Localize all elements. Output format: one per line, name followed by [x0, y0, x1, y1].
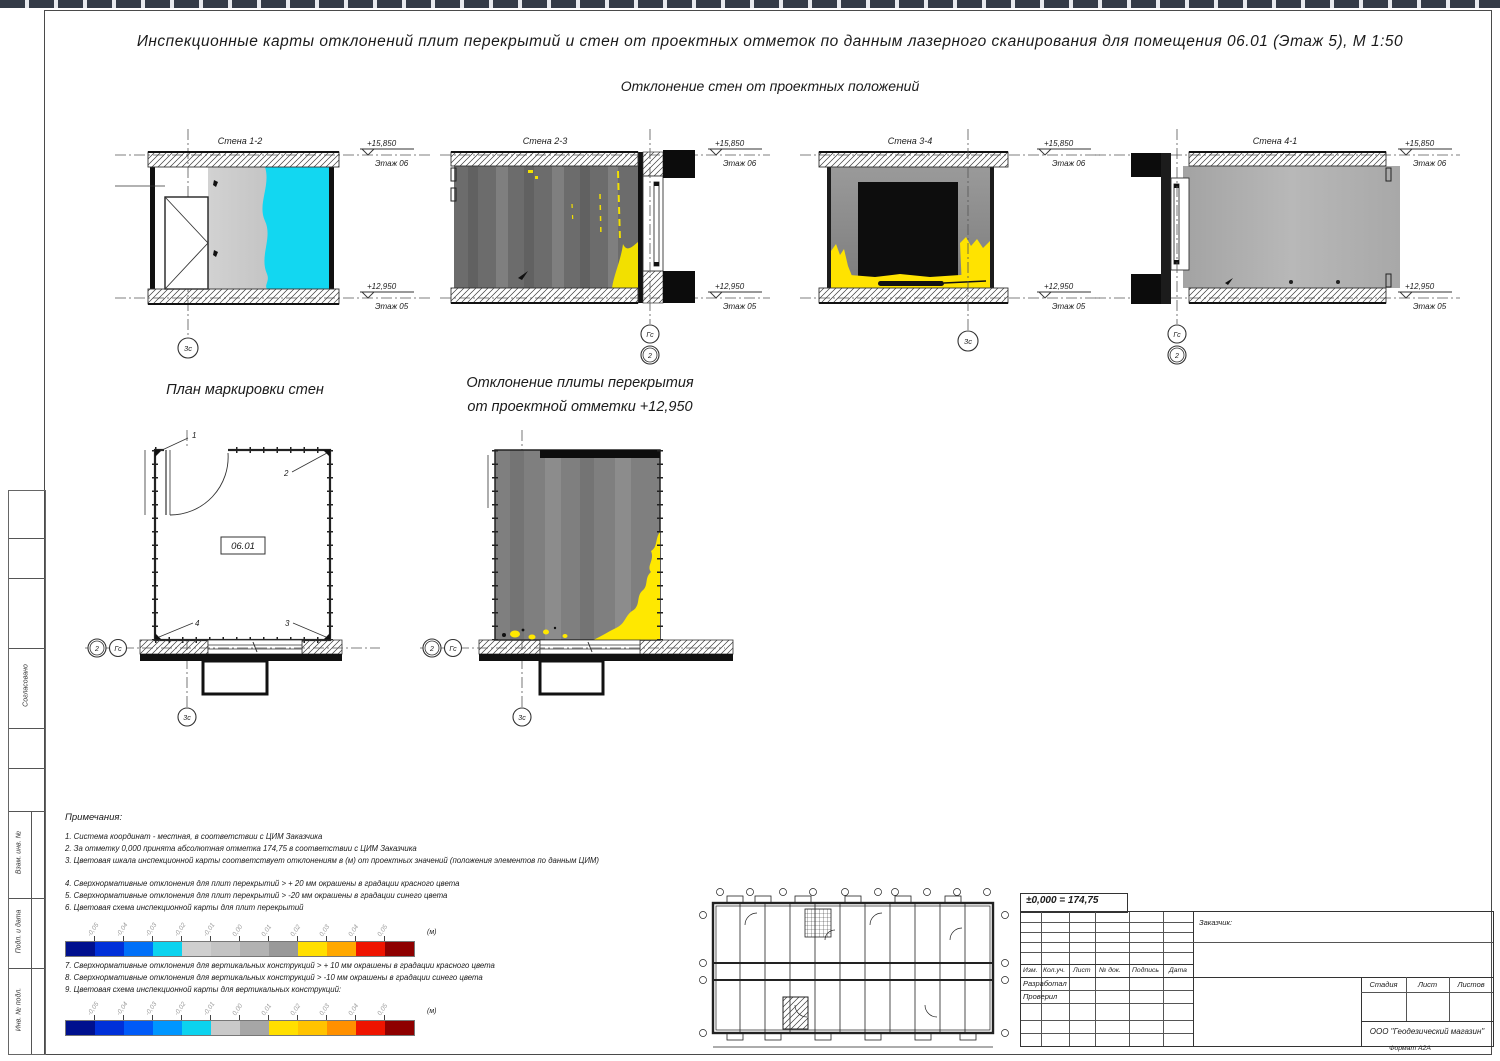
door-elevation [115, 186, 208, 289]
scale-color-segment [356, 1021, 385, 1035]
left-stamp-column [8, 490, 46, 1055]
slab-map-title-line1: Отклонение плиты перекрытия [430, 375, 730, 391]
scale-color-segment [153, 942, 182, 956]
axis-bubble-label: 2 [1174, 353, 1179, 360]
elevation-floor: Этаж 05 [375, 302, 409, 311]
stage-col-listov: Листов [1449, 980, 1493, 989]
scale-color-segment [298, 942, 327, 956]
scale-bar [65, 941, 415, 957]
axis-bubble-label: 2 [94, 646, 99, 653]
scale-color-segment [240, 1021, 269, 1035]
scale-color-segment [385, 1021, 414, 1035]
scale-unit: (м) [427, 1008, 436, 1015]
top-edge-strip [0, 0, 1500, 8]
scale-tick-label: 0,01 [260, 1003, 273, 1017]
scale-unit: (м) [427, 929, 436, 936]
elevation-mark-top: +15,850 Этаж 06 [360, 139, 414, 168]
elevation-mark-bottom: +12,950 Этаж 05 [360, 282, 414, 311]
scale-tick-label: 0,05 [376, 1003, 389, 1017]
axis-bubble-label: 3с [964, 337, 972, 346]
stamp-col-podpis: Подпись [1132, 967, 1159, 974]
room-number: 06.01 [231, 541, 255, 552]
scale-color-segment [153, 1021, 182, 1035]
scale-color-segment [211, 1021, 240, 1035]
elevation-floor: Этаж 05 [1052, 302, 1086, 311]
datum-value: ±0,000 = 174,75 [1026, 895, 1099, 906]
elevation-floor: Этаж 05 [1413, 302, 1447, 311]
slab-map-title-line2: от проектной отметки +12,950 [430, 399, 730, 415]
color-scale-vertical: -0,05-0,04-0,03-0,02-0,010,000,010,020,0… [65, 992, 485, 1036]
axis-bubble-label: Гс [449, 646, 457, 653]
scale-color-segment [327, 942, 356, 956]
door-elevation [1171, 178, 1189, 270]
elevation-mark-bottom: +12,950 Этаж 05 [1037, 282, 1091, 311]
stamp-col-ndok: № док. [1099, 967, 1121, 974]
stamp-col-list: Лист [1073, 967, 1091, 974]
note-line: 2. За отметку 0,000 принята абсолютная о… [65, 844, 417, 853]
scale-color-segment [269, 1021, 298, 1035]
scale-tick-label: 0,05 [376, 924, 389, 938]
wall-label: Стена 1-2 [218, 136, 262, 146]
axis-bubble-label: Гс [646, 332, 654, 339]
scale-color-segment [182, 1021, 211, 1035]
corner-label: 3 [285, 619, 290, 628]
scale-tick-label: 0,03 [318, 924, 331, 938]
note-line: 1. Система координат - местная, в соотве… [65, 832, 322, 841]
stage-col-list: Лист [1406, 980, 1449, 989]
stamp-row-developed: Разработал [1023, 979, 1067, 988]
note-line: 6. Цветовая схема инспекционной карты дл… [65, 903, 304, 912]
scale-color-segment [356, 942, 385, 956]
scale-color-segment [124, 942, 153, 956]
side-label-vzam: Взам. инв. № [16, 811, 23, 895]
axis-bubble-label: 2 [429, 646, 434, 653]
elevation-value: +15,850 [1405, 139, 1435, 148]
format-label: Формат А2А [1340, 1045, 1480, 1052]
scale-color-segment [66, 1021, 95, 1035]
door-elevation [643, 176, 663, 271]
title-block: Изм. Кол.уч. Лист № док. Подпись Дата Ра… [1020, 911, 1494, 1047]
side-label-inv: Инв. № подл. [16, 968, 23, 1052]
scale-tick-label: 0,02 [289, 1003, 302, 1017]
color-scale-slabs: -0,05-0,04-0,03-0,02-0,010,000,010,020,0… [65, 913, 485, 957]
scale-tick-label: 0,02 [289, 924, 302, 938]
note-line: 3. Цветовая шкала инспекционной карты со… [65, 856, 599, 865]
notes-heading: Примечания: [65, 812, 122, 823]
scale-tick-label: 0,00 [231, 924, 244, 938]
scale-tick-label: 0,04 [347, 924, 360, 938]
elevation-value: +12,950 [715, 282, 745, 291]
elevation-mark-top: +15,850 Этаж 06 [708, 139, 762, 168]
wall-label: Стена 4-1 [1253, 136, 1297, 146]
company-name: ООО "Геодезический магазин" [1361, 1027, 1493, 1036]
axis-bubble-label: 3с [184, 344, 192, 353]
scale-color-segment [182, 942, 211, 956]
scale-color-segment [385, 942, 414, 956]
scale-color-segment [95, 1021, 124, 1035]
elevation-value: +15,850 [367, 139, 397, 148]
scale-color-segment [269, 942, 298, 956]
scale-color-segment [211, 942, 240, 956]
wall-label: Стена 3-4 [888, 136, 932, 146]
wall-view-1-2: Стена 1-2 3с +15,850 Этаж 06 +12,950 Эта… [115, 126, 430, 366]
side-label-podp: Подп. и дата [16, 890, 23, 974]
axis-bubble-label: Гс [114, 646, 122, 653]
customer-label: Заказчик: [1199, 918, 1232, 927]
scale-color-segment [298, 1021, 327, 1035]
scale-color-segment [124, 1021, 153, 1035]
scale-color-segment [66, 942, 95, 956]
marking-plan-title: План маркировки стен [120, 382, 370, 398]
wall-view-3-4: Стена 3-4 3с +15,850 Этаж 06 +12,950 Эта… [800, 126, 1100, 366]
stamp-col-izm: Изм. [1023, 967, 1038, 974]
elevation-value: +12,950 [1044, 282, 1074, 291]
note-line: 8. Сверхнормативные отклонения для верти… [65, 973, 483, 982]
scale-tick-label: 0,01 [260, 924, 273, 938]
scale-color-segment [95, 942, 124, 956]
elevation-floor: Этаж 06 [1052, 159, 1086, 168]
wall-view-2-3: Стена 2-3 Гс 2 +15,850 Этаж 06 +12,950 Э… [440, 126, 770, 376]
sheet-subtitle: Отклонение стен от проектных положений [55, 78, 1485, 94]
slab-deviation-map: 2 Гс 3с [415, 420, 735, 730]
corner-label: 1 [192, 431, 196, 440]
note-line: 5. Сверхнормативные отклонения для плит … [65, 891, 447, 900]
elevation-value: +15,850 [715, 139, 745, 148]
marking-plan: 1 2 3 4 06.01 2 Гс 3с [80, 420, 400, 730]
stamp-row-checked: Проверил [1023, 992, 1057, 1001]
axis-bubble-label: Гс [1173, 332, 1181, 339]
elevation-floor: Этаж 06 [723, 159, 757, 168]
key-plan [695, 885, 1015, 1057]
stamp-col-data: Дата [1169, 967, 1187, 974]
scale-tick-label: 0,00 [231, 1003, 244, 1017]
wall-view-4-1: Стена 4-1 Гс 2 +15,850 Этаж 06 +12,950 Э… [1095, 126, 1460, 376]
axis-bubble-label: 2 [647, 353, 652, 360]
sheet-title: Инспекционные карты отклонений плит пере… [55, 33, 1485, 51]
elevation-mark-bottom: +12,950 Этаж 05 [1398, 282, 1452, 311]
elevation-floor: Этаж 06 [1413, 159, 1447, 168]
elevation-mark-top: +15,850 Этаж 06 [1037, 139, 1091, 168]
elevation-value: +15,850 [1044, 139, 1074, 148]
note-line: 7. Сверхнормативные отклонения для верти… [65, 961, 495, 970]
note-line: 4. Сверхнормативные отклонения для плит … [65, 879, 459, 888]
side-label-approved: Согласовано [23, 644, 30, 728]
elevation-value: +12,950 [1405, 282, 1435, 291]
scale-tick-label: 0,04 [347, 1003, 360, 1017]
scale-bar [65, 1020, 415, 1036]
elevation-value: +12,950 [367, 282, 397, 291]
corner-label: 2 [283, 469, 289, 478]
corner-label: 4 [195, 619, 200, 628]
elevation-mark-top: +15,850 Этаж 06 [1398, 139, 1452, 168]
scale-color-segment [240, 942, 269, 956]
axis-bubble-label: 3с [518, 715, 526, 722]
elevation-floor: Этаж 05 [723, 302, 757, 311]
wall-label: Стена 2-3 [523, 136, 567, 146]
elevation-floor: Этаж 06 [375, 159, 409, 168]
stage-col-stadia: Стадия [1361, 980, 1406, 989]
drawing-sheet: Согласовано Взам. инв. № Подп. и дата Ин… [0, 0, 1500, 1061]
axis-bubble-label: 3с [183, 715, 191, 722]
scale-color-segment [327, 1021, 356, 1035]
elevation-mark-bottom: +12,950 Этаж 05 [708, 282, 762, 311]
stamp-col-koluch: Кол.уч. [1043, 967, 1065, 974]
scale-tick-label: 0,03 [318, 1003, 331, 1017]
